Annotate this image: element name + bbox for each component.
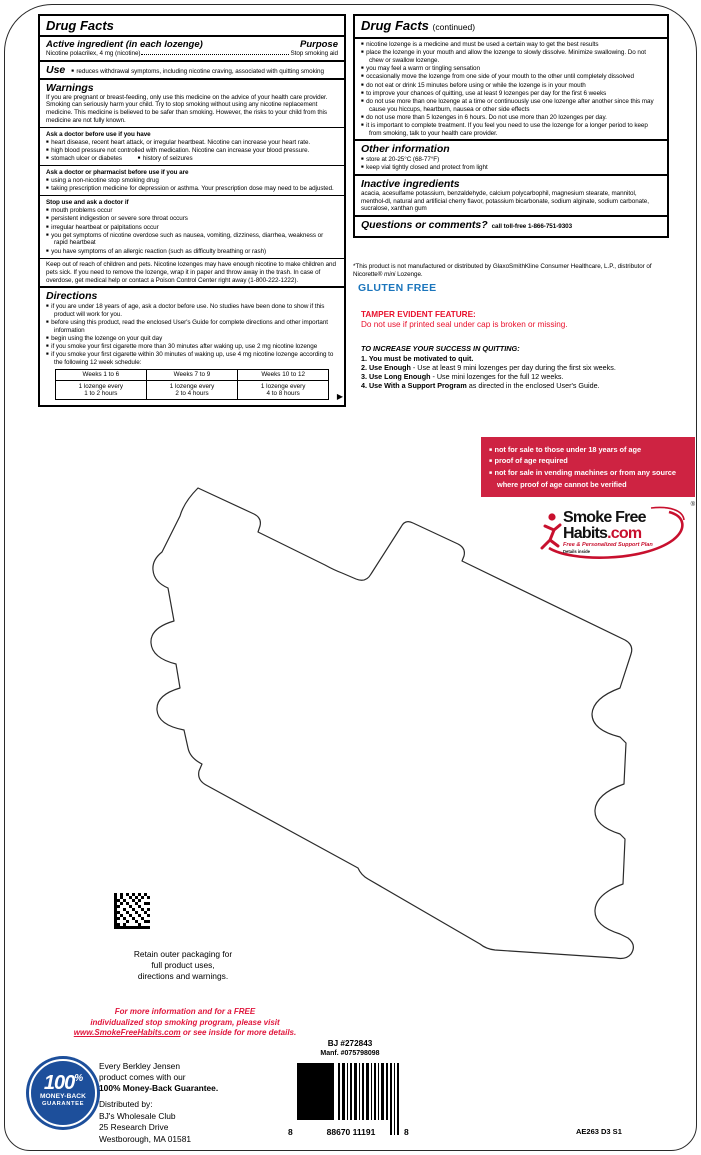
bullet-item: high blood pressure not controlled with … [46,147,338,155]
bullet-item: heart disease, recent heart attack, or i… [46,139,338,147]
bullet-item: using a non-nicotine stop smoking drug [46,177,338,185]
active-ingredient-heading: Active ingredient (in each lozenge) [46,39,203,50]
questions-phone: call toll-free 1-866-751-9303 [492,223,572,231]
stop-use-heading: Stop use and ask a doctor if [46,199,338,207]
seal-100-percent: 100% [26,1069,100,1093]
guarantee-text: Every Berkley Jensen product comes with … [99,1061,279,1093]
data-matrix-code [114,893,117,896]
bullet-item: you get symptoms of nicotine overdose su… [46,232,338,247]
success-in-quitting-section: TO INCREASE YOUR SUCCESS IN QUITTING: 1.… [361,344,666,391]
divider [355,174,667,176]
warnings-intro: If you are pregnant or breast-feeding, o… [46,94,338,125]
use-section: Use reduces withdrawal symptoms, includi… [46,64,338,76]
drug-facts-panel-right: Drug Facts (continued) nicotine lozenge … [353,14,669,238]
bullet-item: mouth problems occur [46,207,338,215]
seal-guarantee: GUARANTEE [26,1101,100,1108]
table-header: Weeks 10 to 12 [238,369,329,381]
bullet-item: nicotine lozenge is a medicine and must … [361,41,661,49]
bullet-item: if you smoke your first cigarette more t… [46,343,338,351]
dosing-schedule-table: Weeks 1 to 6 Weeks 7 to 9 Weeks 10 to 12… [55,369,329,401]
divider [40,195,344,196]
success-step: 2. Use Enough - Use at least 9 mini loze… [361,363,666,372]
smokefreehabits-link: www.SmokeFreeHabits.com [74,1028,181,1037]
bullet-pair-row: stomach ulcer or diabetes history of sei… [46,155,338,163]
bullet-item: history of seizures [138,155,193,162]
age-bullet: not for sale to those under 18 years of … [489,445,689,456]
dotted-leader [141,54,289,55]
manf-number: Manf. #075798098 [290,1049,410,1058]
continued-arrow-icon: ▶ [337,393,343,401]
use-heading: Use [46,64,65,76]
divider [355,215,667,217]
keep-out-of-reach-text: Keep out of reach of children and pets. … [46,261,338,284]
stop-smoking-promo-note: For more information and for a FREE indi… [58,1007,312,1039]
barcode-left-digit: 8 [288,1127,293,1137]
bullet-item: stomach ulcer or diabetes [46,155,122,162]
bullet-item: place the lozenge in your mouth and allo… [361,49,661,64]
table-cell: 1 lozenge every2 to 4 hours [146,381,237,400]
gsk-disclaimer: *This product is not manufactured or dis… [353,263,669,278]
divider [40,127,344,128]
bullet-item: persistent indigestion or severe sore th… [46,215,338,223]
active-ingredient-row: Nicotine polacrilex, 4 mg (nicotine) Sto… [46,50,338,58]
table-header: Weeks 1 to 6 [55,369,146,381]
divider [40,258,344,259]
bullet-item: irregular heartbeat or palpitations occu… [46,224,338,232]
purpose-heading: Purpose [300,39,338,50]
bullet-item: you may feel a warm or tingling sensatio… [361,65,661,73]
divider [40,286,344,288]
use-text: reduces withdrawal symptoms, including n… [71,68,324,76]
divider [40,165,344,166]
success-step: 4. Use With a Support Program as directe… [361,381,666,390]
ingredient-name: Nicotine polacrilex, 4 mg (nicotine) [46,50,140,58]
bullet-item: if you smoke your first cigarette within… [46,351,338,366]
bj-number: BJ #272843 [290,1039,410,1049]
divider [40,35,344,37]
bullet-item: do not use more than one lozenge at a ti… [361,98,661,113]
tamper-evident-notice: TAMPER EVIDENT FEATURE: Do not use if pr… [361,310,661,330]
bullet-item: occasionally move the lozenge from one s… [361,73,661,81]
divider [40,60,344,62]
ask-pharmacist-heading: Ask a doctor or pharmacist before use if… [46,169,338,177]
divider [40,78,344,80]
table-header-row: Weeks 1 to 6 Weeks 7 to 9 Weeks 10 to 12 [55,369,328,381]
purpose-value: Stop smoking aid [290,50,338,58]
drug-facts-continued-title: Drug Facts (continued) [361,18,661,35]
tamper-evident-heading: TAMPER EVIDENT FEATURE: [361,310,661,320]
plate-code: AE263 D3 S1 [576,1127,622,1136]
success-step: 3. Use Long Enough - Use mini lozenges f… [361,372,666,381]
success-heading: TO INCREASE YOUR SUCCESS IN QUITTING: [361,344,666,354]
bullet-item: it is important to complete treatment. I… [361,122,661,137]
bullet-item: to improve your chances of quitting, use… [361,90,661,98]
registered-mark: ® [691,502,695,508]
questions-heading: Questions or comments? [361,219,488,231]
bullet-item: do not eat or drink 15 minutes before us… [361,82,661,90]
bullet-item: you have symptoms of an allergic reactio… [46,248,338,256]
divider [355,139,667,141]
tamper-evident-text: Do not use if printed seal under cap is … [361,320,661,330]
bullet-item: keep vial tightly closed and protect fro… [361,164,661,172]
bullet-item: store at 20-25°C (68-77°F) [361,156,661,164]
bullet-item: taking prescription medicine for depress… [46,185,338,193]
gluten-free-badge: GLUTEN FREE [358,282,437,294]
bullet-item: begin using the lozenge on your quit day [46,335,338,343]
barcode-digits: 88670 11191 [307,1127,395,1137]
distributor-address: Distributed by: BJ's Wholesale Club 25 R… [99,1099,279,1145]
drug-facts-panel-left: Drug Facts Active ingredient (in each lo… [38,14,346,407]
ask-doctor-heading: Ask a doctor before use if you have [46,131,338,139]
other-information-heading: Other information [361,143,661,155]
barcode-right-digit: 8 [404,1127,409,1137]
table-row: 1 lozenge every1 to 2 hours 1 lozenge ev… [55,381,328,400]
bullet-item: do not use more than 5 lozenges in 6 hou… [361,114,661,122]
inactive-ingredients-heading: Inactive ingredients [361,178,661,190]
drug-facts-title: Drug Facts [46,18,338,33]
active-ingredient-header: Active ingredient (in each lozenge) Purp… [46,39,338,50]
success-step: 1. You must be motivated to quit. [361,354,666,363]
age-bullet: proof of age required [489,456,689,467]
inactive-ingredients-text: acacia, acesulfame potassium, benzaldehy… [361,190,661,213]
bullet-item: if you are under 18 years of age, ask a … [46,303,338,318]
table-cell: 1 lozenge every1 to 2 hours [55,381,146,400]
seal-money-back: MONEY-BACK [26,1093,100,1101]
warnings-heading: Warnings [46,82,338,94]
table-header: Weeks 7 to 9 [146,369,237,381]
divider [355,37,667,39]
questions-row: Questions or comments? call toll-free 1-… [361,219,661,231]
money-back-guarantee-seal: 100% MONEY-BACK GUARANTEE [26,1056,100,1130]
item-numbers: BJ #272843 Manf. #075798098 [290,1039,410,1058]
bullet-item: before using this product, read the encl… [46,319,338,334]
directions-heading: Directions [46,290,338,302]
retain-packaging-note: Retain outer packaging for full product … [83,949,283,982]
table-cell: 1 lozenge every4 to 8 hours [238,381,329,400]
